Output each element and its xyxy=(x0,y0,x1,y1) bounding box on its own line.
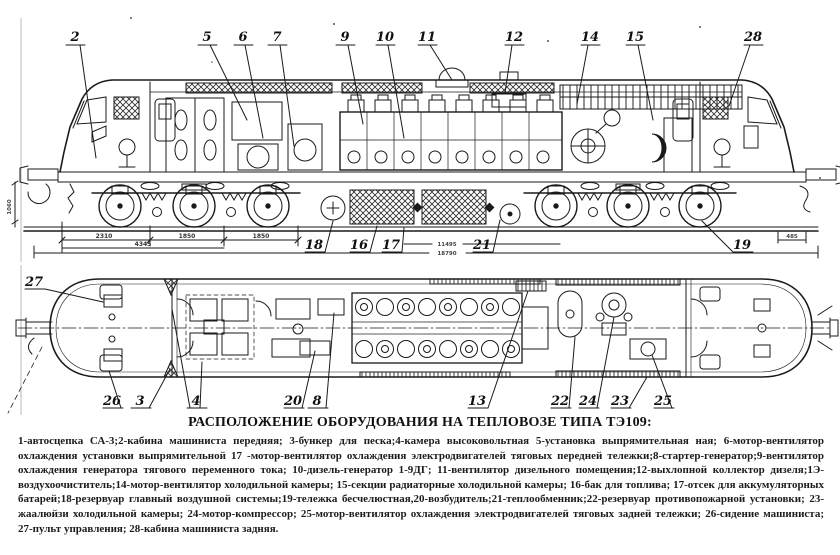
side-elevation-drawing: 2310 1850 1850 4345 11495 18790 485 1060 xyxy=(0,0,840,263)
callout-22: 22 xyxy=(550,394,569,409)
dim-label: 1850 xyxy=(253,233,270,240)
callout-10: 10 xyxy=(376,30,394,45)
side-callouts: 2 5 6 7 9 10 11 12 14 15 28 18 16 17 21 … xyxy=(69,30,762,253)
dim-label: 485 xyxy=(786,234,798,240)
dim-label: 2310 xyxy=(96,233,113,240)
callout-2: 2 xyxy=(69,30,79,45)
callout-25: 25 xyxy=(653,394,672,409)
callout-12: 12 xyxy=(505,30,523,45)
diagram-title: РАСПОЛОЖЕНИЕ ОБОРУДОВАНИЯ НА ТЕПЛОВОЗЕ Т… xyxy=(0,414,840,431)
callout-14: 14 xyxy=(581,30,599,45)
dim-label: 18790 xyxy=(437,251,456,257)
callout-11: 11 xyxy=(418,30,436,45)
callout-6: 6 xyxy=(238,30,247,45)
callout-21: 21 xyxy=(472,238,491,253)
callout-24: 24 xyxy=(578,394,597,409)
callout-4: 4 xyxy=(191,394,200,409)
scanned-diagram-page: 2310 1850 1850 4345 11495 18790 485 1060 xyxy=(0,0,840,555)
callout-28: 28 xyxy=(743,30,762,45)
callout-27: 27 xyxy=(24,275,43,290)
callout-15: 15 xyxy=(626,30,644,45)
dim-label: 1060 xyxy=(7,199,13,214)
roof-equipment xyxy=(186,68,742,109)
callout-5: 5 xyxy=(202,30,211,45)
callout-18: 18 xyxy=(305,238,323,253)
legend-text: 1-автосцепка СА-3;2-кабина машиниста пер… xyxy=(18,434,824,536)
plan-view-drawing: 27 26 3 4 20 8 13 22 24 23 25 xyxy=(0,265,840,415)
callout-7: 7 xyxy=(272,30,281,45)
callout-20: 20 xyxy=(283,394,302,409)
rear-bogie xyxy=(524,184,736,227)
dim-label: 4345 xyxy=(135,241,152,248)
callout-16: 16 xyxy=(350,238,368,253)
callout-9: 9 xyxy=(340,30,349,45)
callout-3: 3 xyxy=(135,394,144,409)
callout-19: 19 xyxy=(733,238,751,253)
front-bogie xyxy=(92,184,300,227)
callout-8: 8 xyxy=(312,394,321,409)
dim-label: 11495 xyxy=(437,242,456,248)
callout-17: 17 xyxy=(382,238,400,253)
dim-label: 1850 xyxy=(179,233,196,240)
callout-23: 23 xyxy=(610,394,629,409)
callout-26: 26 xyxy=(102,394,121,409)
callout-13: 13 xyxy=(468,394,486,409)
